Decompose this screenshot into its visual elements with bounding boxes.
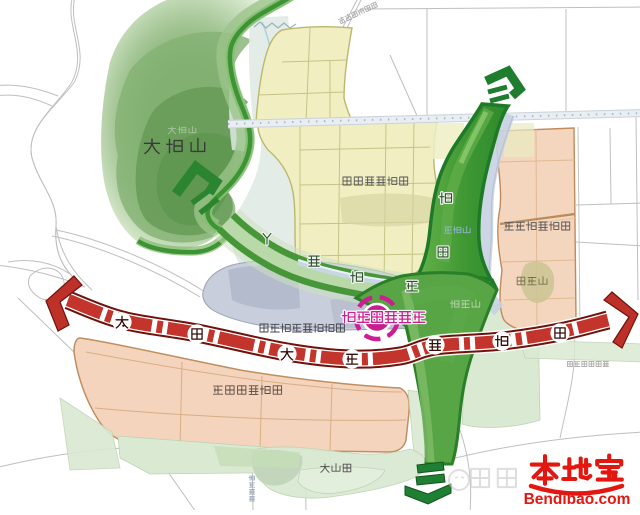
- svg-text:Bendibao.com: Bendibao.com: [524, 491, 631, 508]
